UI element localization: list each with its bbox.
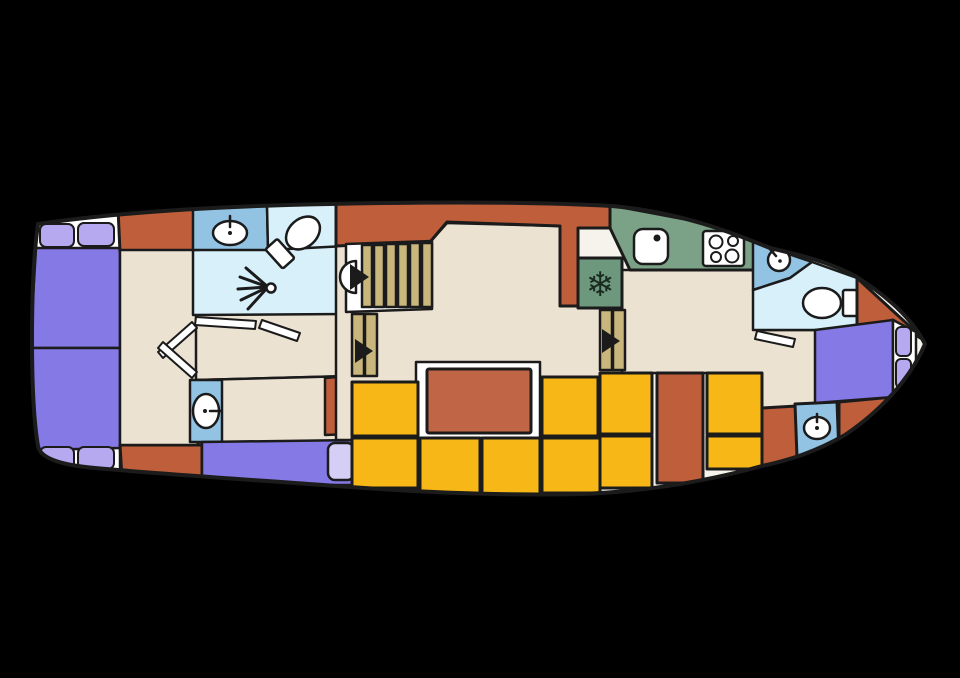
rooms-layer: ❄: [30, 200, 928, 495]
bow-corner-sink-dot: [778, 259, 782, 263]
bench-seat: [542, 377, 598, 436]
bench-seat: [352, 438, 418, 488]
wc-fwd-cistern: [843, 290, 857, 316]
stair-tread: [374, 245, 384, 307]
saloon-table: [427, 369, 531, 433]
pillow: [78, 223, 114, 246]
stair-tread: [398, 244, 408, 307]
bench-seat: [600, 436, 652, 488]
pillow: [896, 327, 911, 356]
bench-seat: [542, 438, 600, 493]
stair-tread: [386, 244, 396, 307]
stove-burner: [711, 252, 721, 262]
washbasin-port-dot: [203, 409, 207, 413]
stern-bed-bottom: [30, 348, 120, 450]
deck-plan-svg: ❄: [0, 0, 960, 678]
bench-seat: [352, 382, 418, 436]
stair-tread: [410, 243, 420, 307]
pillow: [40, 224, 74, 247]
washbasin-fwd-dot: [815, 426, 819, 430]
freezer-snowflake-icon: ❄: [586, 265, 615, 305]
boat-floorplan: ❄: [0, 0, 960, 678]
cockpit-locker: [657, 373, 703, 483]
stove-burner: [726, 250, 739, 263]
bench-seat: [420, 438, 480, 494]
stern-bed-top: [30, 248, 120, 348]
bench-seat: [707, 373, 762, 434]
bow-bed: [815, 320, 893, 403]
galley-sink-faucet-dot: [654, 235, 661, 242]
wc-fwd-toilet: [803, 288, 841, 318]
bench-seat: [482, 438, 540, 495]
bench-seat: [600, 373, 652, 434]
shower-head-icon: [267, 284, 276, 293]
galley-sink: [634, 229, 668, 264]
stove-burner: [728, 236, 738, 246]
stove-burner: [710, 236, 723, 249]
guest-berth-pillow: [328, 443, 354, 480]
washbasin-aft-dot: [228, 231, 232, 235]
stair-tread: [365, 314, 377, 376]
stair-tread: [422, 243, 432, 307]
shower-room: [193, 246, 346, 315]
bench-seat: [707, 436, 762, 469]
